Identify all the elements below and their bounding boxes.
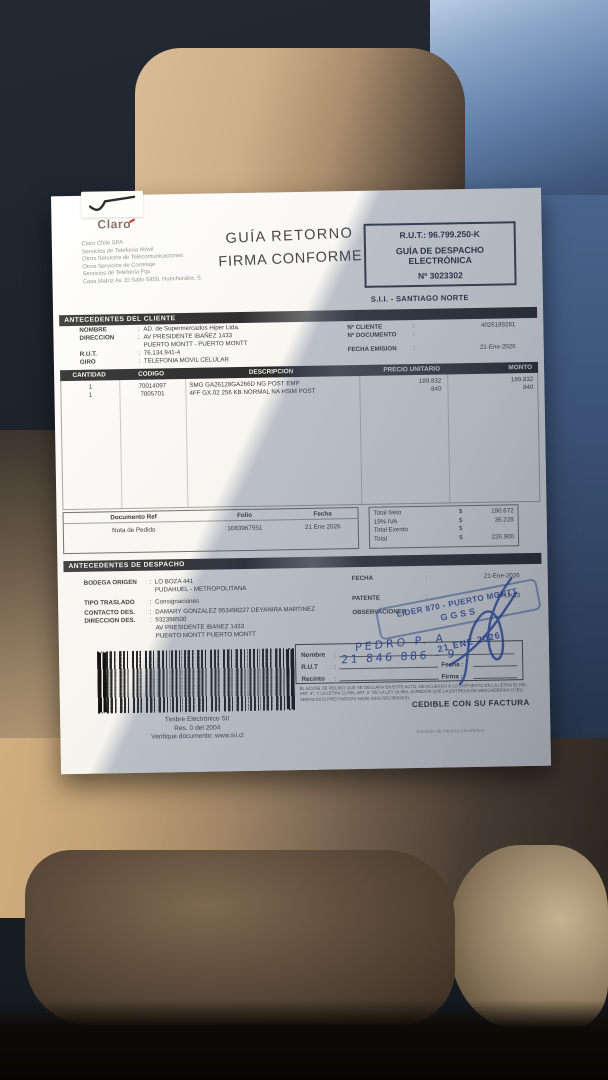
recinto-writing-line bbox=[339, 670, 438, 682]
claro-logo-text: Claro bbox=[97, 217, 131, 232]
checkmark-scribble-icon bbox=[86, 194, 138, 215]
client-row: FECHA EMISION:21-Ene-2026 bbox=[348, 343, 518, 354]
total-row: Total$226.900 bbox=[374, 533, 514, 544]
brown-jacket bbox=[25, 850, 455, 1025]
client-row: Nº DOCUMENTO: bbox=[347, 329, 517, 340]
dispatch-fields-left: BODEGA ORIGEN:LO BOZA 441 PUDAHUEL - MET… bbox=[84, 575, 375, 642]
client-fields-right: Nº CLIENTE:4026189281 Nº DOCUMENTO: FECH… bbox=[347, 321, 517, 354]
firma-conforme-text: FIRMA CONFORME bbox=[200, 247, 381, 271]
totals-box: Total Neto$190.672 19% IVA$36.228 Total … bbox=[368, 504, 519, 549]
column-divider bbox=[119, 380, 122, 508]
column-divider bbox=[447, 374, 450, 502]
column-divider bbox=[359, 376, 362, 504]
provider-footer-note: Solución de Factura Electrónica bbox=[416, 729, 484, 735]
sii-office: S.I.I. - SANTIAGO NORTE bbox=[371, 293, 469, 304]
pdf417-barcode bbox=[97, 648, 296, 713]
guia-retorno-text: GUÍA RETORNO bbox=[199, 224, 380, 248]
doc-type-line2: ELECTRÓNICA bbox=[366, 254, 514, 267]
corner-sticker bbox=[81, 191, 143, 218]
client-fields-left: NOMBRE:AD. de Supermercados Hiper Ltda. … bbox=[79, 322, 345, 367]
folio-number: Nº 3023302 bbox=[366, 269, 514, 282]
claro-logo: Claro bbox=[97, 217, 138, 232]
paper-document: Claro Claro Chile SPA Servicios de Telef… bbox=[51, 188, 551, 774]
signature-scribble bbox=[441, 565, 542, 697]
return-guide-label: GUÍA RETORNO FIRMA CONFORME bbox=[199, 224, 381, 271]
rut-number: R.U.T.: 96.799.250-K bbox=[366, 228, 514, 241]
reference-doc-box: Documento Ref Folio Fecha Nota de Pedido… bbox=[63, 507, 360, 554]
cedible-text: CEDIBLE CON SU FACTURA bbox=[412, 698, 530, 709]
timbre-electronico-text: Timbre Electrónico SII Res. 0 del 2004 V… bbox=[98, 714, 296, 743]
dark-floor-shadow bbox=[0, 1000, 608, 1080]
items-table: CANTIDAD CODIGO DESCRIPCION PRECIO UNITA… bbox=[60, 362, 540, 510]
column-divider bbox=[185, 379, 188, 507]
sii-rut-box: R.U.T.: 96.799.250-K GUÍA DE DESPACHO EL… bbox=[364, 221, 517, 288]
photo-of-dispatch-document: Claro Claro Chile SPA Servicios de Telef… bbox=[0, 0, 608, 1080]
items-table-body: 1 70014097 SMG GA26128GA266D NG POST EMP… bbox=[60, 373, 540, 510]
